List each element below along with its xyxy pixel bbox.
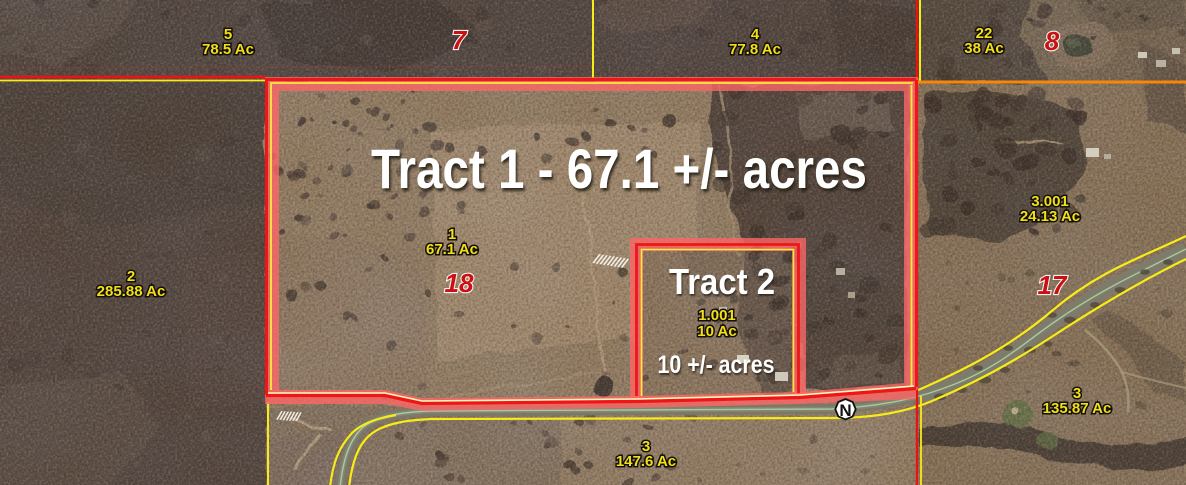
svg-text:N: N: [839, 401, 851, 420]
svg-text:8: 8: [1045, 26, 1060, 56]
svg-text:7: 7: [452, 25, 468, 55]
svg-text:38 Ac: 38 Ac: [964, 40, 1003, 57]
svg-text:77.8 Ac: 77.8 Ac: [729, 41, 781, 58]
svg-text:10 Ac: 10 Ac: [697, 323, 736, 340]
svg-text:147.6 Ac: 147.6 Ac: [616, 453, 676, 470]
svg-text:1.001: 1.001: [698, 307, 736, 324]
svg-text:Tract 1 - 67.1 +/- acres: Tract 1 - 67.1 +/- acres: [371, 137, 867, 200]
svg-text:17: 17: [1038, 270, 1068, 300]
svg-text:135.87 Ac: 135.87 Ac: [1043, 400, 1112, 417]
svg-text:10 +/- acres: 10 +/- acres: [658, 351, 775, 379]
svg-text:24.13 Ac: 24.13 Ac: [1020, 208, 1080, 225]
svg-text:Tract 2: Tract 2: [669, 261, 775, 302]
svg-text:18: 18: [445, 268, 474, 298]
svg-text:67.1 Ac: 67.1 Ac: [426, 241, 478, 258]
svg-text:78.5 Ac: 78.5 Ac: [202, 41, 254, 58]
svg-text:285.88 Ac: 285.88 Ac: [97, 283, 166, 300]
